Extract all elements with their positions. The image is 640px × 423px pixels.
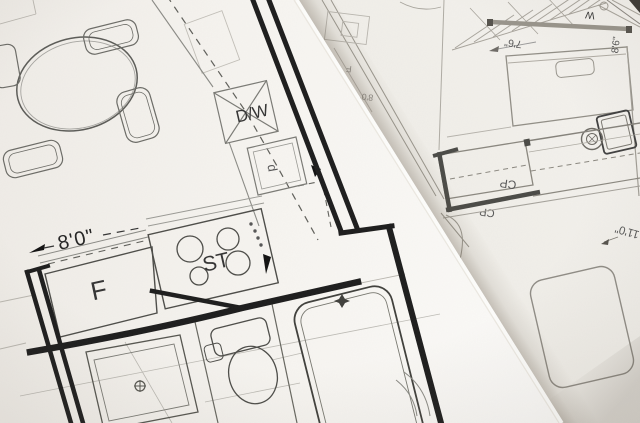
- photo-grain: [0, 0, 640, 423]
- floorplan-scene: F 8'0" W: [0, 0, 640, 423]
- blueprint-photo: F 8'0" W: [0, 0, 640, 423]
